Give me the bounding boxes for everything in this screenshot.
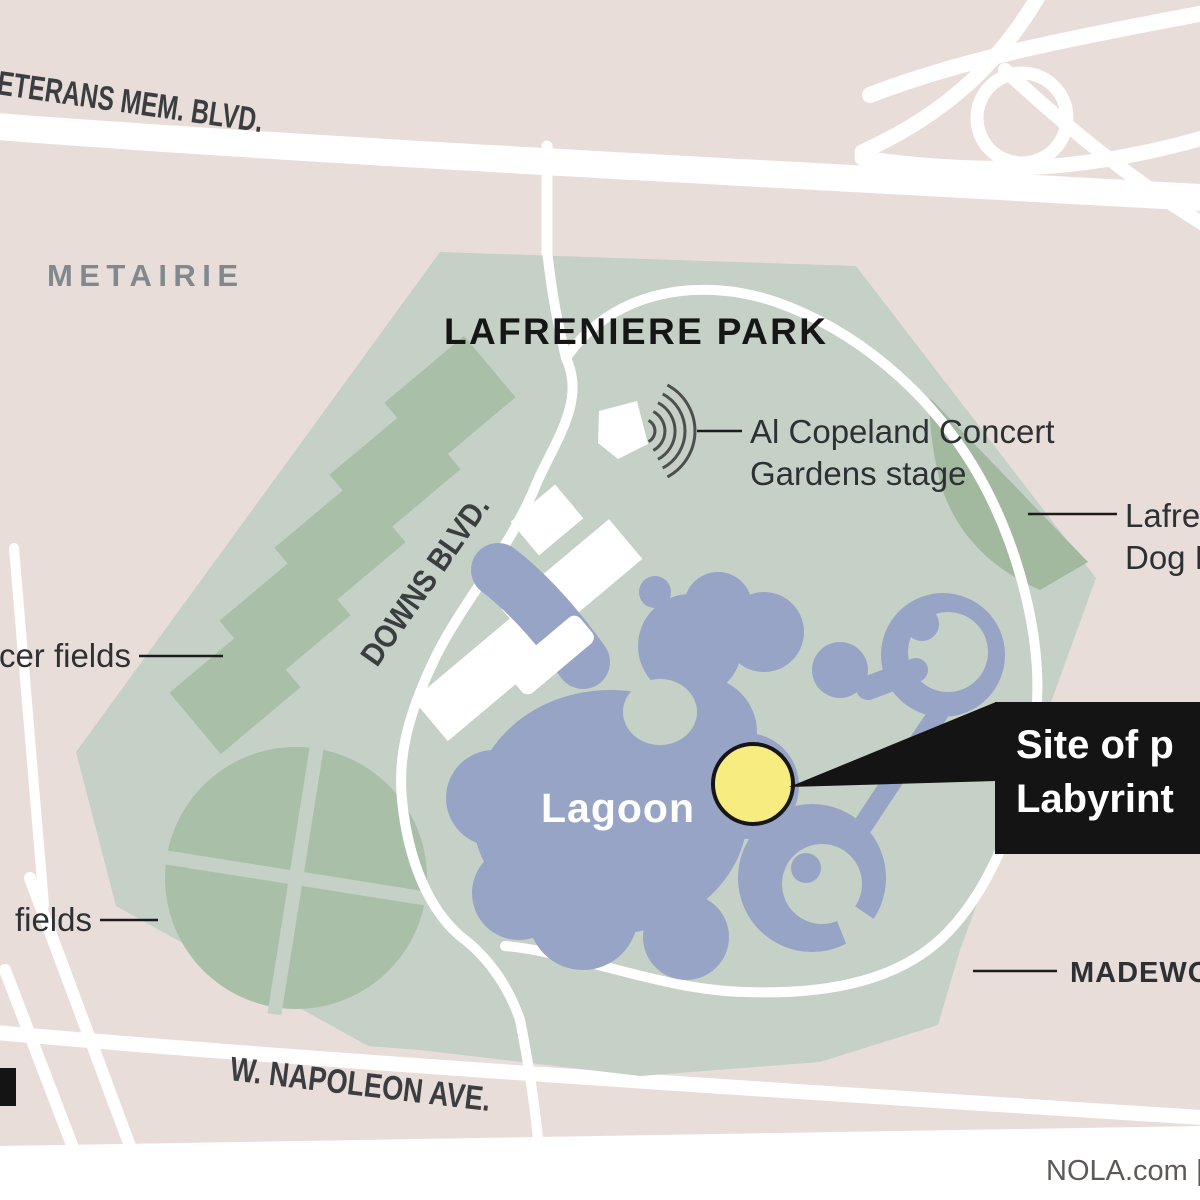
dogpark-label-line2: Dog P <box>1125 539 1200 576</box>
lagoon-lobe <box>724 592 804 672</box>
island <box>623 679 697 745</box>
credit-label: NOLA.com | T <box>1046 1155 1200 1187</box>
metairie-label: METAIRIE <box>47 258 247 293</box>
lagoon-lobe <box>643 894 729 980</box>
lagoon-lobe <box>446 750 542 846</box>
clipped-label-box <box>0 1068 16 1106</box>
site-label-line1: Site of p <box>1016 723 1174 767</box>
stage-label-line2: Gardens stage <box>750 455 966 492</box>
ball-fields-label: fields <box>15 901 92 938</box>
dogpark-label-line1: Lafre <box>1125 497 1200 534</box>
locator-map: Site of p Labyrint Al Copeland Concert G… <box>0 0 1200 1200</box>
site-label-line2: Labyrint <box>1016 777 1174 821</box>
lagoon-lobe <box>528 860 638 970</box>
soccer-fields-label: cer fields <box>0 637 131 674</box>
madewood-label: MADEWO <box>1070 957 1200 989</box>
site-marker <box>713 744 793 824</box>
map-canvas: Site of p Labyrint Al Copeland Concert G… <box>0 0 1200 1200</box>
lagoon-lobe <box>639 576 671 608</box>
swirl-pond <box>791 853 821 883</box>
stage-label-line1: Al Copeland Concert <box>750 413 1055 450</box>
lagoon-label: Lagoon <box>541 785 695 831</box>
lagoon-ring-pond <box>905 607 939 641</box>
park-title: LAFRENIERE PARK <box>444 311 832 352</box>
